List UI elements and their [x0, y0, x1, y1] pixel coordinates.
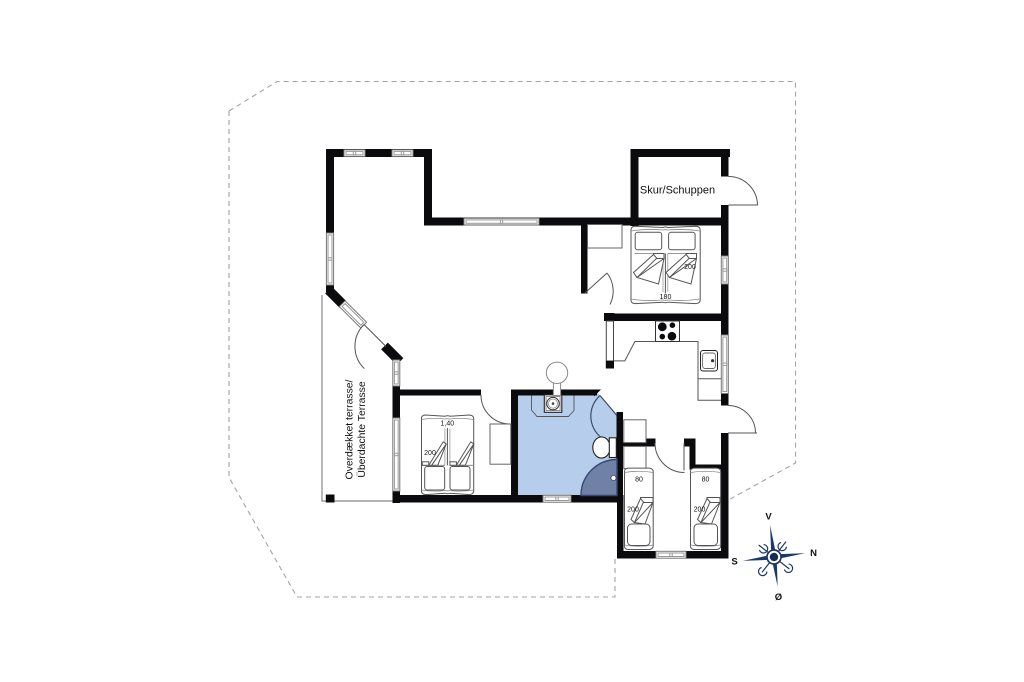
svg-text:Ø: Ø [775, 592, 782, 603]
svg-text:200: 200 [684, 264, 696, 271]
svg-text:200: 200 [694, 507, 706, 514]
svg-text:Overdækket terrasse/: Overdækket terrasse/ [345, 379, 356, 479]
svg-text:180: 180 [660, 294, 672, 301]
svg-text:200: 200 [627, 507, 639, 514]
svg-text:Überdachte Terrasse: Überdachte Terrasse [356, 381, 368, 477]
svg-text:80: 80 [702, 477, 710, 484]
svg-text:V: V [765, 512, 772, 523]
svg-text:S: S [731, 557, 737, 568]
svg-text:Skur/Schuppen: Skur/Schuppen [640, 185, 715, 197]
svg-text:1,40: 1,40 [440, 421, 454, 428]
svg-text:N: N [810, 548, 817, 559]
svg-text:80: 80 [635, 477, 643, 484]
svg-text:200: 200 [424, 450, 436, 457]
